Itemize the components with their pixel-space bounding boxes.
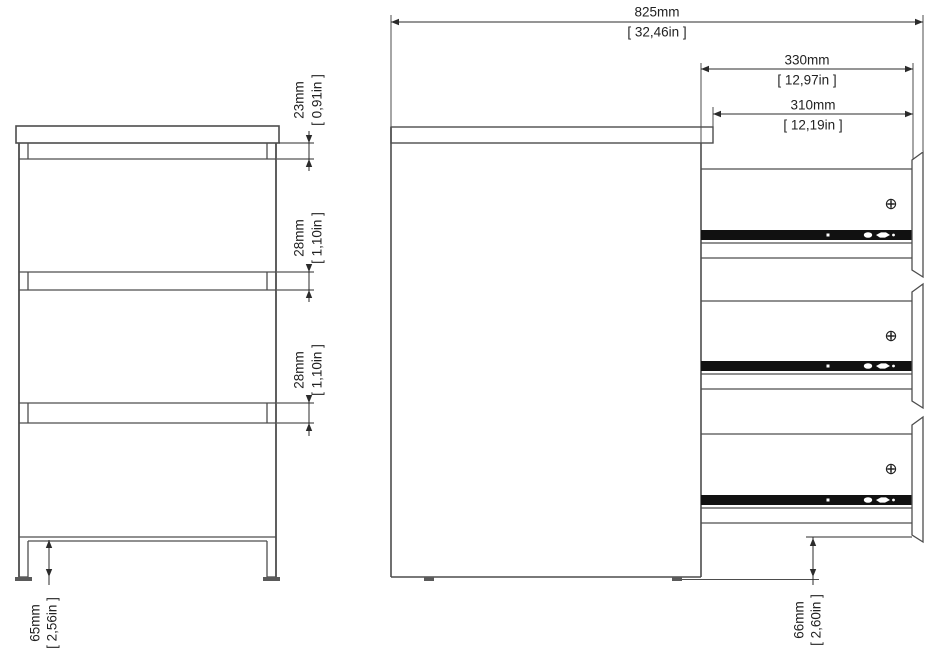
dim-drawer-depth-in: [ 12,97in ] [777, 73, 836, 88]
dimension-drawing: 23mm [ 0,91in ] 28mm [ 1,10in ] 28mm [ 1… [0, 0, 940, 660]
dimension-arrow [46, 569, 52, 577]
dimension-arrow [306, 423, 312, 431]
screw-symbol [886, 331, 895, 340]
dim-inner-depth-mm: 310mm [790, 98, 835, 113]
rail-cutout-oval [864, 232, 872, 238]
dimension-arrow [810, 569, 816, 577]
dimension-arrow [701, 66, 709, 72]
drawing-canvas: 23mm [ 0,91in ] 28mm [ 1,10in ] 28mm [ 1… [0, 0, 940, 660]
drawer-front-panel [912, 152, 923, 277]
drawer-front-panel [912, 417, 923, 542]
front-right-foot [263, 577, 280, 581]
dimension-arrow [810, 538, 816, 546]
screw-symbol [886, 464, 895, 473]
front-top-panel [16, 126, 279, 143]
rail-cutout [827, 499, 830, 502]
front-view-dimensions [46, 131, 314, 585]
dimension-arrow [905, 66, 913, 72]
screw-symbol [886, 199, 895, 208]
dim-gap1-in: [ 1,10in ] [310, 212, 325, 264]
rail-cutout-oval [864, 497, 872, 503]
dim-drawer-depth-mm: 330mm [784, 53, 829, 68]
dim-total-depth-mm: 825mm [634, 5, 679, 20]
front-view [15, 126, 280, 581]
dim-gap2-mm: 28mm [292, 351, 307, 389]
dimension-arrow [905, 111, 913, 117]
dim-top-gap-in: [ 0,91in ] [310, 74, 325, 126]
dimension-arrow [306, 135, 312, 143]
side-drawer-2 [701, 284, 923, 408]
dim-top-gap-mm: 23mm [292, 81, 307, 119]
dim-plinth-mm: 65mm [28, 604, 43, 642]
drawer-front-panel [912, 284, 923, 408]
side-front-foot [672, 577, 682, 581]
dimension-arrow [391, 19, 399, 25]
dim-total-depth-in: [ 32,46in ] [627, 25, 686, 40]
dim-plinth-in: [ 2,56in ] [45, 597, 60, 649]
dimension-labels: 23mm [ 0,91in ] 28mm [ 1,10in ] 28mm [ 1… [28, 5, 843, 649]
dim-gap1-mm: 28mm [292, 219, 307, 257]
rail-cutout-dot [892, 234, 895, 237]
dim-inner-depth-in: [ 12,19in ] [783, 118, 842, 133]
side-drawer-1 [701, 152, 923, 277]
side-drawer-3 [701, 417, 923, 542]
rail-cutout-dot [892, 365, 895, 368]
dim-gap2-in: [ 1,10in ] [310, 344, 325, 396]
rail-cutout-dot [892, 499, 895, 502]
dimension-arrow [915, 19, 923, 25]
side-view [391, 15, 923, 581]
dimension-arrow [306, 159, 312, 167]
rail-cutout-oval [864, 363, 872, 369]
dimension-arrow [306, 264, 312, 272]
front-left-foot [15, 577, 32, 581]
dim-floor-clearance-mm: 66mm [792, 601, 807, 639]
dimension-arrow [306, 290, 312, 298]
dimension-arrow [713, 111, 721, 117]
rail-cutout [827, 365, 830, 368]
dim-floor-clearance-in: [ 2,60in ] [809, 594, 824, 646]
rail-cutout [827, 234, 830, 237]
side-top-panel [391, 127, 713, 143]
side-back-foot [424, 577, 434, 581]
